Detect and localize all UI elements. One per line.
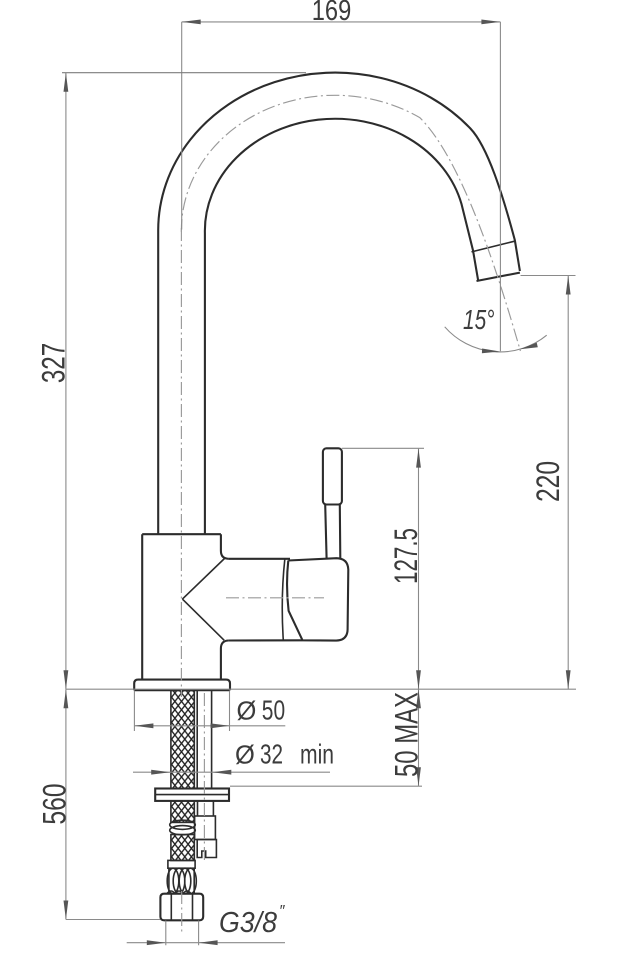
svg-text:32: 32 [260, 739, 283, 770]
svg-text:560: 560 [36, 783, 72, 824]
svg-text:50: 50 [262, 695, 285, 726]
svg-text:220: 220 [530, 461, 566, 502]
svg-text:15°: 15° [463, 304, 495, 335]
svg-text:Ø: Ø [237, 698, 257, 726]
svg-text:50 MAX: 50 MAX [388, 692, 424, 777]
svg-text:127.5: 127.5 [388, 528, 424, 584]
svg-text:169: 169 [312, 0, 352, 27]
svg-text:″: ″ [279, 903, 285, 920]
svg-text:min: min [300, 739, 334, 770]
svg-text:G3/8: G3/8 [219, 907, 277, 939]
svg-text:Ø: Ø [235, 742, 255, 770]
svg-text:327: 327 [36, 343, 72, 383]
